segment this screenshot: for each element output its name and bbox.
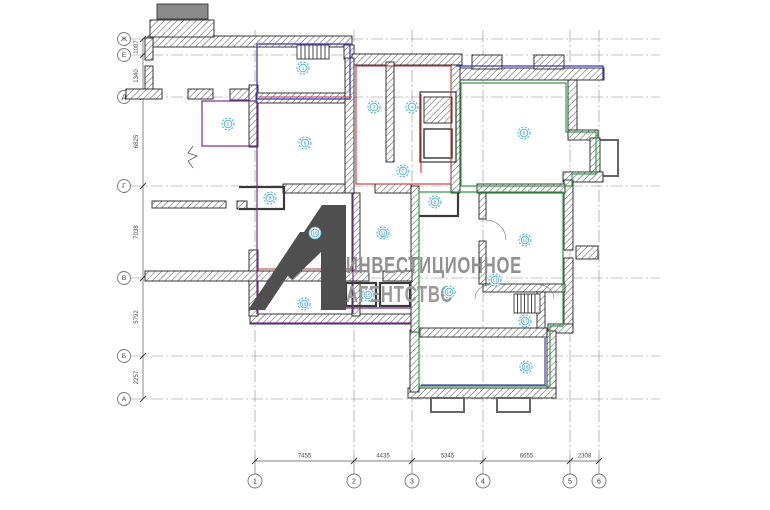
room-marker: 18 <box>520 361 532 373</box>
pier <box>126 89 162 99</box>
room-marker: 9 <box>429 196 441 208</box>
room-marker-number: 16 <box>302 302 307 307</box>
wall <box>352 54 462 65</box>
left-dim-value: 6825 <box>134 134 140 148</box>
wall <box>145 38 153 60</box>
wall <box>375 184 411 193</box>
wall <box>283 184 345 193</box>
watermark: ИНВЕСТИЦИОННОЕ АГЕНТСТВО <box>248 205 522 310</box>
axis-label-Ж: Ж <box>121 36 127 43</box>
axis-label-А: А <box>122 396 127 403</box>
room-marker-number: 12 <box>523 238 528 243</box>
room-marker: 4 <box>406 101 418 113</box>
pier <box>188 89 213 99</box>
room-marker-number: 17 <box>523 319 528 324</box>
axis-label-В: В <box>122 275 126 282</box>
room-marker: 5 <box>518 127 530 139</box>
bottom-dim-value: 2308 <box>578 454 592 460</box>
room-marker: 1 <box>297 62 309 74</box>
room-marker: 14 <box>443 286 455 298</box>
stair-top <box>297 45 329 59</box>
room-marker: 10 <box>309 227 321 239</box>
floor-plan-page: ЖЕДГВБА100713406825703857922257123456745… <box>0 0 770 510</box>
room-marker: 12 <box>519 234 531 246</box>
wall <box>456 68 604 80</box>
axis-label-Е: Е <box>122 52 127 59</box>
axis-label-1: 1 <box>253 479 257 486</box>
pier <box>230 89 251 100</box>
left-dim-value: 7038 <box>134 225 140 239</box>
pillar <box>534 55 564 69</box>
room-marker: 13 <box>489 274 501 286</box>
room-marker: 3 <box>368 101 380 113</box>
room-marker: 6 <box>299 137 311 149</box>
bottom-dim-value: 6655 <box>520 454 534 460</box>
room-marker-number: 13 <box>493 278 498 283</box>
shaft-cell <box>424 97 452 123</box>
wall-layer <box>126 4 618 412</box>
axis-label-4: 4 <box>481 479 485 486</box>
axis-label-Г: Г <box>122 183 126 190</box>
wall <box>547 331 556 393</box>
axis-label-6: 6 <box>597 479 601 486</box>
room-marker-number: 15 <box>366 293 371 298</box>
wall <box>410 330 419 392</box>
room-marker: 17 <box>519 315 531 327</box>
pillar <box>472 55 502 69</box>
roof-block <box>157 4 208 19</box>
bottom-dim-value: 4435 <box>376 454 390 460</box>
wall <box>576 246 598 259</box>
room-marker: 8 <box>264 192 276 204</box>
room-marker: 7 <box>397 165 409 177</box>
room-marker: 15 <box>362 289 374 301</box>
wall <box>420 328 547 337</box>
room-marker-number: 18 <box>524 365 529 370</box>
wall <box>408 388 556 398</box>
wall <box>479 193 486 219</box>
room-marker-number: 11 <box>381 231 386 236</box>
axis-label-3: 3 <box>410 479 414 486</box>
room-marker-number: 10 <box>313 231 318 236</box>
axis-label-5: 5 <box>568 479 572 486</box>
wall <box>564 258 573 328</box>
floor-plan-drawing: ЖЕДГВБА100713406825703857922257123456745… <box>0 0 770 510</box>
a1-logo-bar <box>280 205 346 310</box>
wall <box>256 93 353 103</box>
bay-window <box>598 140 618 176</box>
window-sill <box>431 398 464 412</box>
parapet <box>152 201 226 208</box>
door-swing <box>486 220 506 240</box>
room-marker: 11 <box>377 227 389 239</box>
window-sill <box>497 398 530 412</box>
left-dim-value: 2257 <box>134 370 140 384</box>
parapet <box>237 201 247 209</box>
stair-bottom <box>514 294 540 313</box>
room-marker: 2 <box>222 118 234 130</box>
bottom-dim-value: 5345 <box>441 454 455 460</box>
wall <box>150 20 214 37</box>
wall <box>568 80 577 134</box>
shaft-cell <box>424 129 452 158</box>
wall <box>590 138 600 176</box>
left-dim-value: 1007 <box>134 40 140 54</box>
left-dim-value: 1340 <box>134 69 140 83</box>
axis-label-2: 2 <box>352 479 356 486</box>
axis-label-Б: Б <box>122 353 126 360</box>
wall <box>145 271 345 281</box>
room-marker-number: 14 <box>447 290 452 295</box>
break-line <box>188 146 197 168</box>
left-dim-value: 5792 <box>134 310 140 324</box>
bottom-dim-value: 7455 <box>298 454 312 460</box>
room-marker: 16 <box>298 298 310 310</box>
wall <box>386 62 394 162</box>
